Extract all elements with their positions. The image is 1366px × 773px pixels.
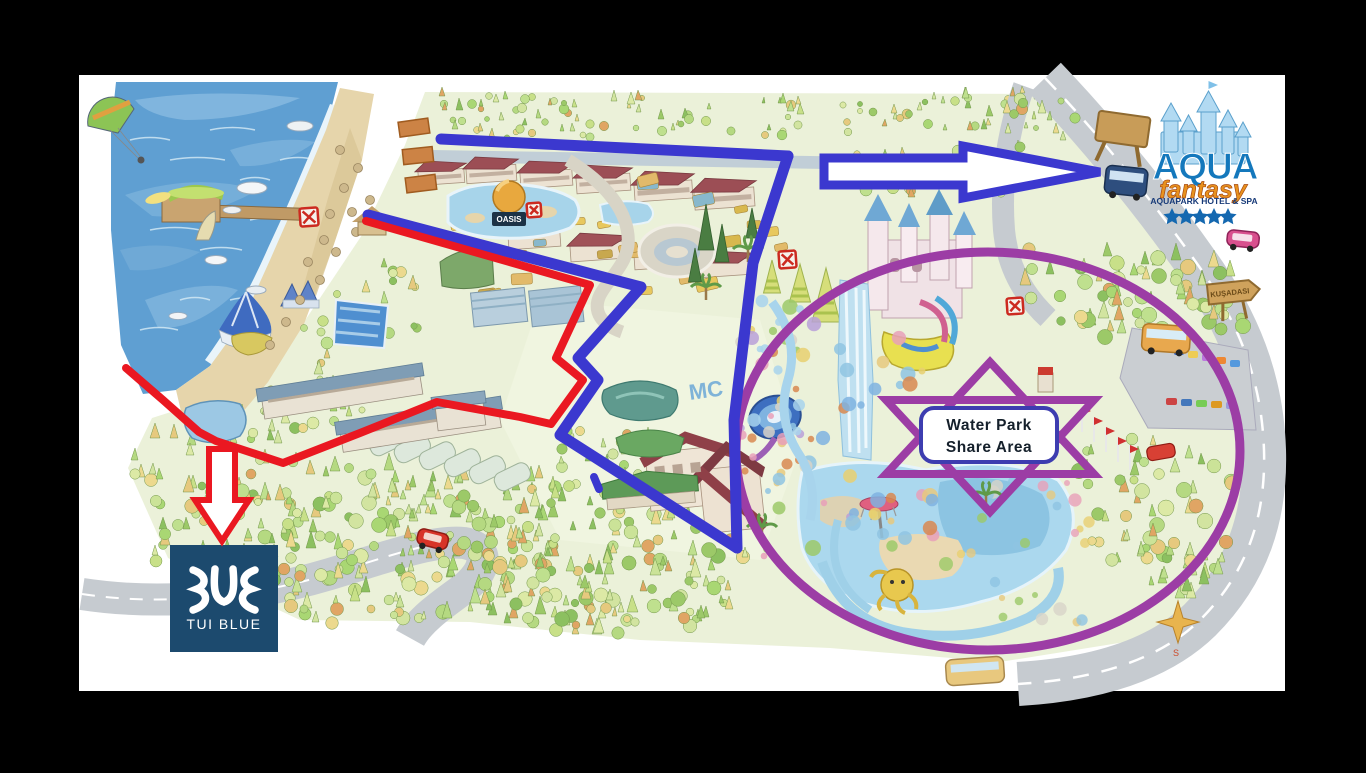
svg-text:MC: MC — [687, 375, 724, 405]
svg-text:Water Park: Water Park — [946, 417, 1031, 434]
svg-text:Share Area: Share Area — [946, 439, 1032, 456]
svg-text:OASIS: OASIS — [497, 215, 523, 224]
svg-text:AQUAPARK HOTEL & SPA: AQUAPARK HOTEL & SPA — [1150, 196, 1257, 206]
svg-text:S: S — [1173, 648, 1179, 658]
svg-text:TUI BLUE: TUI BLUE — [186, 616, 261, 632]
